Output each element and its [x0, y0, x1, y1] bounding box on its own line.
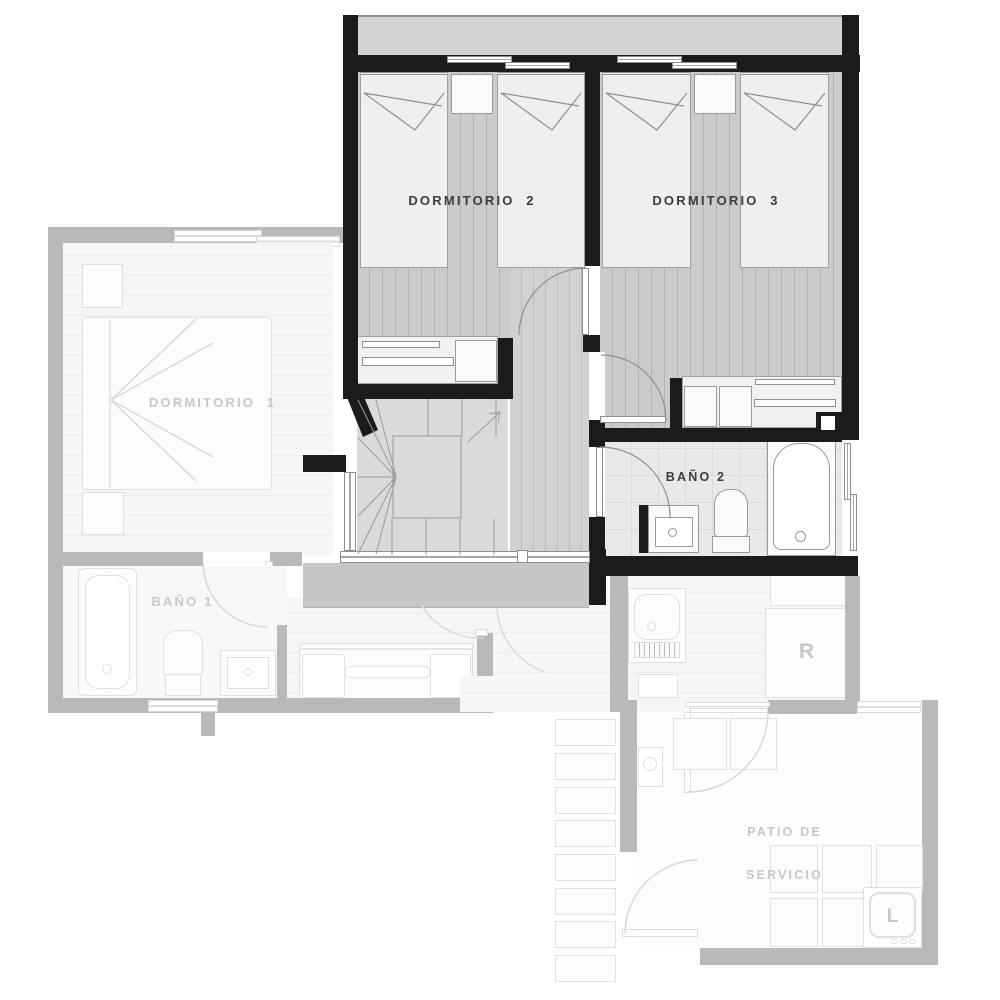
stairs-window-2: [527, 551, 590, 563]
entry-floor: [493, 607, 589, 712]
bano2-sink-divider-wall: [639, 505, 648, 553]
dorm1-nightstand-bottom: [82, 492, 124, 535]
dorm1-label: DORMITORIO 1: [95, 395, 330, 410]
bano1-window: [148, 700, 218, 712]
dorm1-left-wall: [48, 243, 63, 713]
lower-stair-tread: [555, 888, 616, 915]
wall-stair-left: [303, 455, 346, 472]
wall-right: [842, 15, 859, 440]
lower-stair-tread: [555, 955, 616, 982]
patio-top-window: [857, 701, 921, 713]
stairs-side-window: [344, 472, 356, 551]
dorm3-label: DORMITORIO 3: [616, 193, 816, 208]
bano1-toilet-bowl: [163, 630, 203, 676]
refrigerator-label: R: [765, 640, 848, 664]
dorm2-door-leaf: [582, 268, 589, 335]
bano2-toilet-bowl: [714, 489, 748, 537]
patio-sliding-rail-2: [690, 708, 768, 713]
patio-cabinet-1: [673, 718, 727, 770]
kitchen-lower-cabinet: [638, 674, 678, 698]
bano1-door-opening: [203, 552, 270, 566]
patio-sliding-rail-1: [685, 702, 770, 707]
wall-top: [343, 55, 860, 72]
kitchen-faucet: [647, 622, 656, 631]
hall-floor: [510, 268, 589, 556]
dorm3-door-leaf: [600, 416, 666, 423]
lower-terrace-band: [303, 563, 589, 608]
dorm2-bed-1: [360, 72, 448, 268]
bano2-tub-drain: [795, 531, 806, 542]
patio-tile: [876, 845, 923, 893]
lower-stair-tread: [555, 921, 616, 948]
dorm2-closet-rod-2: [362, 357, 454, 366]
lower-stair-tread: [555, 753, 616, 780]
lower-stair-tread: [555, 719, 616, 746]
dorm2-window-sash-2: [505, 62, 570, 69]
wall-hinge-block: [583, 333, 600, 352]
dorm3-nightstand: [694, 74, 736, 114]
dorm2-bed-2: [497, 72, 585, 268]
lower-stair-tread: [555, 820, 616, 847]
wall-bottom-right: [589, 556, 858, 576]
patio-top-wall: [768, 700, 857, 714]
dorm1-window-sash-1: [174, 230, 262, 242]
entry-floor-lower: [460, 676, 493, 712]
dorm2-window-sash-1: [447, 56, 512, 63]
dorm1-nightstand-top: [82, 264, 123, 308]
kitchen-drainboard: [634, 642, 680, 658]
wall-stub: [589, 549, 606, 605]
kitchen-sink-basin: [634, 594, 680, 640]
bano2-label: BAÑO 2: [640, 470, 752, 484]
dorm2-label: DORMITORIO 2: [372, 193, 572, 208]
stairs-floor: [357, 398, 508, 556]
wall-closet-right: [498, 338, 513, 386]
bano2-sink-drain: [668, 528, 677, 537]
lower-stair-tread: [555, 787, 616, 814]
wall-notch-inner: [821, 416, 835, 430]
wall-closet3-divider: [670, 378, 682, 432]
dorm3-closet-panel-2: [719, 386, 752, 427]
dorm2-closet-shelf: [455, 340, 497, 382]
patio-label: PATIO DE SERVICIO: [702, 797, 867, 911]
dorm3-bed-1: [602, 72, 691, 268]
patio-washbasin-drain: [643, 757, 657, 771]
washer-knob: [909, 939, 916, 944]
patio-label-line1: PATIO DE: [702, 825, 867, 840]
sofa-back-line: [300, 648, 472, 650]
dorm2-nightstand: [451, 74, 493, 114]
wall-bano2-top: [589, 428, 842, 442]
door-jamb-living: [475, 629, 488, 636]
wall-stub-bottom: [201, 713, 215, 736]
washer-knob: [900, 939, 907, 944]
bano1-tub-drain: [102, 664, 112, 674]
patio-right-wall: [922, 700, 938, 965]
bano1-toilet-tank: [165, 674, 201, 696]
kitchen-right-wall: [845, 576, 860, 712]
lower-stair-tread: [555, 854, 616, 881]
dorm3-closet-rod-1: [755, 379, 835, 385]
floor-plan: DORMITORIO 1 BAÑO 1 R: [0, 0, 1000, 1000]
bano1-label: BAÑO 1: [115, 594, 250, 609]
dorm3-closet-panel-1: [684, 386, 717, 427]
dorm3-closet-rod-2: [754, 399, 836, 407]
wall-center: [585, 72, 600, 268]
wall-closet-bottom: [343, 384, 513, 399]
terrace: [352, 15, 852, 60]
dorm3-bed-2: [740, 72, 829, 268]
washer-knob: [891, 939, 898, 944]
patio-left-wall: [620, 700, 637, 852]
bano2-window-sash-2: [850, 494, 857, 551]
dorm3-window-sash-2: [672, 62, 737, 69]
patio-cabinet-2: [730, 718, 777, 770]
sofa-armrest-left: [302, 654, 345, 698]
dorm2-closet-rod-1: [362, 341, 440, 348]
patio-exterior-door-leaf: [622, 929, 698, 937]
bano2-door-leaf: [596, 447, 603, 517]
patio-bottom-wall: [700, 948, 938, 965]
wall-bano2-left-lower: [589, 517, 605, 551]
sofa-seat-bar: [345, 666, 430, 678]
bano1-sink-drain: [244, 668, 252, 676]
stairs-window-1: [340, 551, 520, 563]
bano2-toilet-tank: [712, 536, 750, 553]
kitchen-left-wall: [610, 576, 628, 712]
dorm3-door-opening: [589, 352, 605, 420]
patio-label-line2: SERVICIO: [702, 868, 867, 883]
bano2-window-sash-1: [844, 443, 851, 500]
washer-label: L: [863, 906, 922, 928]
